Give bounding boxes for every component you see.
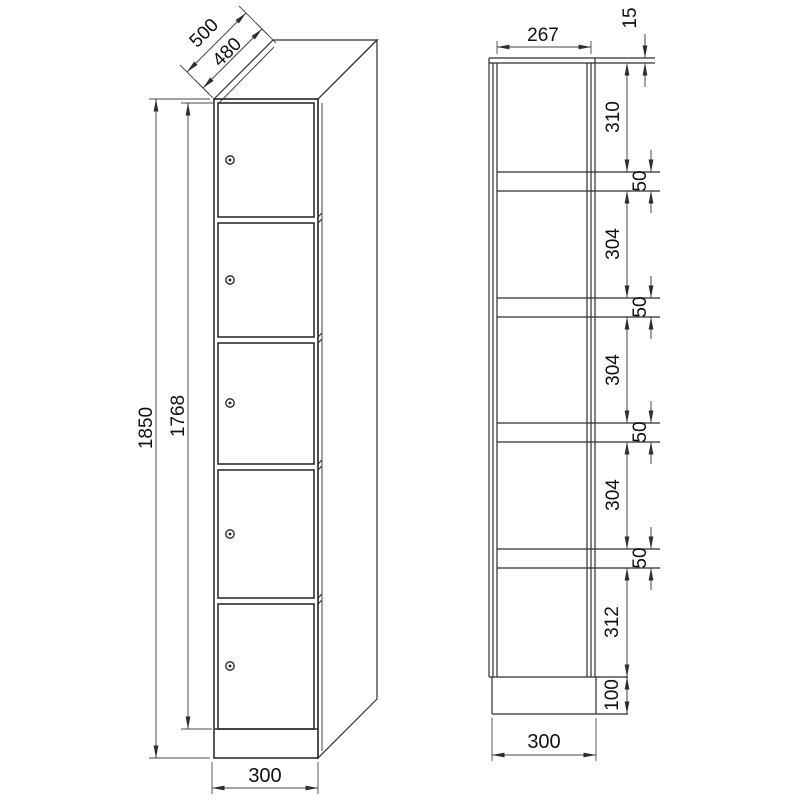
lock-icon xyxy=(226,276,234,284)
front-view: 500 480 1850 1768 300 xyxy=(136,6,377,794)
dim-label-shelf-2: 50 xyxy=(630,296,651,317)
dim-label-compartment-2: 304 xyxy=(603,228,624,260)
dim-label-shelf-3: 50 xyxy=(630,421,651,442)
dim-height-1768: 1768 xyxy=(168,103,214,729)
dim-top-panel-15: 15 xyxy=(620,7,645,87)
dim-label-shelf-1: 50 xyxy=(630,170,651,191)
dim-shelf-column: 50 50 50 50 xyxy=(630,150,651,590)
section-top-panel xyxy=(489,58,655,63)
dim-width-300-front: 300 xyxy=(212,762,318,794)
section-view: 267 15 310 304 304 304 312 100 xyxy=(489,7,660,761)
dim-label-shelf-4: 50 xyxy=(630,547,651,568)
cabinet-front-face xyxy=(214,99,318,758)
dim-label-compartment-5: 312 xyxy=(602,606,623,638)
section-walls xyxy=(489,58,595,677)
lock-icon xyxy=(226,530,234,538)
dim-label-depth-body: 480 xyxy=(209,34,246,71)
dim-inner-width-267: 267 xyxy=(497,25,591,54)
locker-doors xyxy=(218,103,322,729)
locker-door-3 xyxy=(218,343,314,464)
lock-icon xyxy=(226,156,234,164)
locks xyxy=(226,156,234,670)
locker-door-2 xyxy=(218,223,314,337)
dim-width-300-section: 300 xyxy=(492,718,596,761)
lock-icon xyxy=(226,399,234,407)
locker-door-1 xyxy=(218,103,314,217)
dim-label-height-doors: 1768 xyxy=(168,395,189,437)
locker-door-5 xyxy=(218,604,314,729)
dim-label-inner-width: 267 xyxy=(527,25,559,46)
dim-label-compartment-1: 310 xyxy=(603,101,624,133)
dim-label-width-section: 300 xyxy=(527,731,560,753)
dim-label-compartment-3: 304 xyxy=(603,354,624,386)
technical-drawing-page: 500 480 1850 1768 300 xyxy=(0,0,800,800)
dim-label-width-front: 300 xyxy=(248,765,281,787)
dim-label-top-panel: 15 xyxy=(620,7,641,28)
dim-label-plinth: 100 xyxy=(602,679,623,711)
dim-label-compartment-4: 304 xyxy=(603,479,624,511)
locker-dimension-drawing: 500 480 1850 1768 300 xyxy=(0,0,800,800)
locker-door-4 xyxy=(218,470,314,598)
lock-icon xyxy=(226,662,234,670)
section-shelves xyxy=(497,172,660,568)
dim-label-height-total: 1850 xyxy=(136,407,157,449)
dim-compartments-column: 310 304 304 304 312 100 xyxy=(602,63,627,714)
cabinet-side-face xyxy=(318,40,377,758)
